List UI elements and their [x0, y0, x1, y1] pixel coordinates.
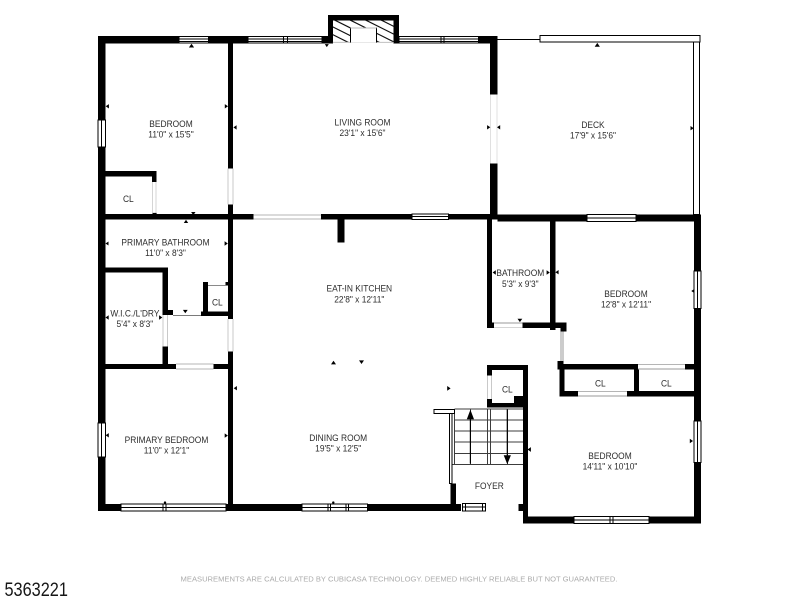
svg-text:11'0" x 15'5": 11'0" x 15'5": [148, 129, 193, 140]
svg-text:17'9" x 15'6": 17'9" x 15'6": [570, 130, 616, 141]
svg-text:14'11" x 10'10": 14'11" x 10'10": [583, 461, 638, 472]
svg-text:DINING ROOM: DINING ROOM: [309, 433, 367, 444]
svg-text:CL: CL: [212, 297, 223, 308]
svg-text:W.I.C./L'DRY: W.I.C./L'DRY: [110, 308, 159, 319]
svg-text:PRIMARY BEDROOM: PRIMARY BEDROOM: [125, 435, 209, 446]
svg-text:11'0" x 8'3": 11'0" x 8'3": [145, 248, 186, 259]
svg-text:12'8" x 12'11": 12'8" x 12'11": [601, 299, 651, 310]
svg-text:FOYER: FOYER: [475, 481, 504, 492]
svg-text:5363221: 5363221: [5, 579, 68, 600]
svg-text:PRIMARY BATHROOM: PRIMARY BATHROOM: [121, 237, 209, 248]
svg-text:19'5" x 12'5": 19'5" x 12'5": [315, 443, 361, 454]
svg-text:11'0" x 12'1": 11'0" x 12'1": [144, 445, 189, 456]
svg-text:DECK: DECK: [581, 119, 604, 130]
svg-text:BEDROOM: BEDROOM: [588, 450, 631, 461]
svg-text:CL: CL: [123, 193, 134, 204]
svg-text:BEDROOM: BEDROOM: [149, 119, 192, 130]
svg-text:LIVING ROOM: LIVING ROOM: [335, 117, 391, 128]
svg-text:CL: CL: [595, 378, 606, 389]
svg-text:BEDROOM: BEDROOM: [604, 289, 647, 300]
svg-text:BATHROOM: BATHROOM: [496, 268, 544, 279]
svg-text:CL: CL: [502, 384, 513, 395]
svg-text:MEASUREMENTS ARE CALCULATED BY: MEASUREMENTS ARE CALCULATED BY CUBICASA …: [181, 574, 618, 583]
svg-text:5'4" x 8'3": 5'4" x 8'3": [117, 318, 154, 329]
svg-text:EAT-IN KITCHEN: EAT-IN KITCHEN: [326, 283, 392, 294]
svg-text:CL: CL: [661, 378, 672, 389]
svg-text:23'1" x 15'6": 23'1" x 15'6": [339, 128, 385, 139]
svg-text:22'8" x 12'11": 22'8" x 12'11": [334, 294, 384, 305]
svg-text:5'3" x 9'3": 5'3" x 9'3": [502, 278, 539, 289]
